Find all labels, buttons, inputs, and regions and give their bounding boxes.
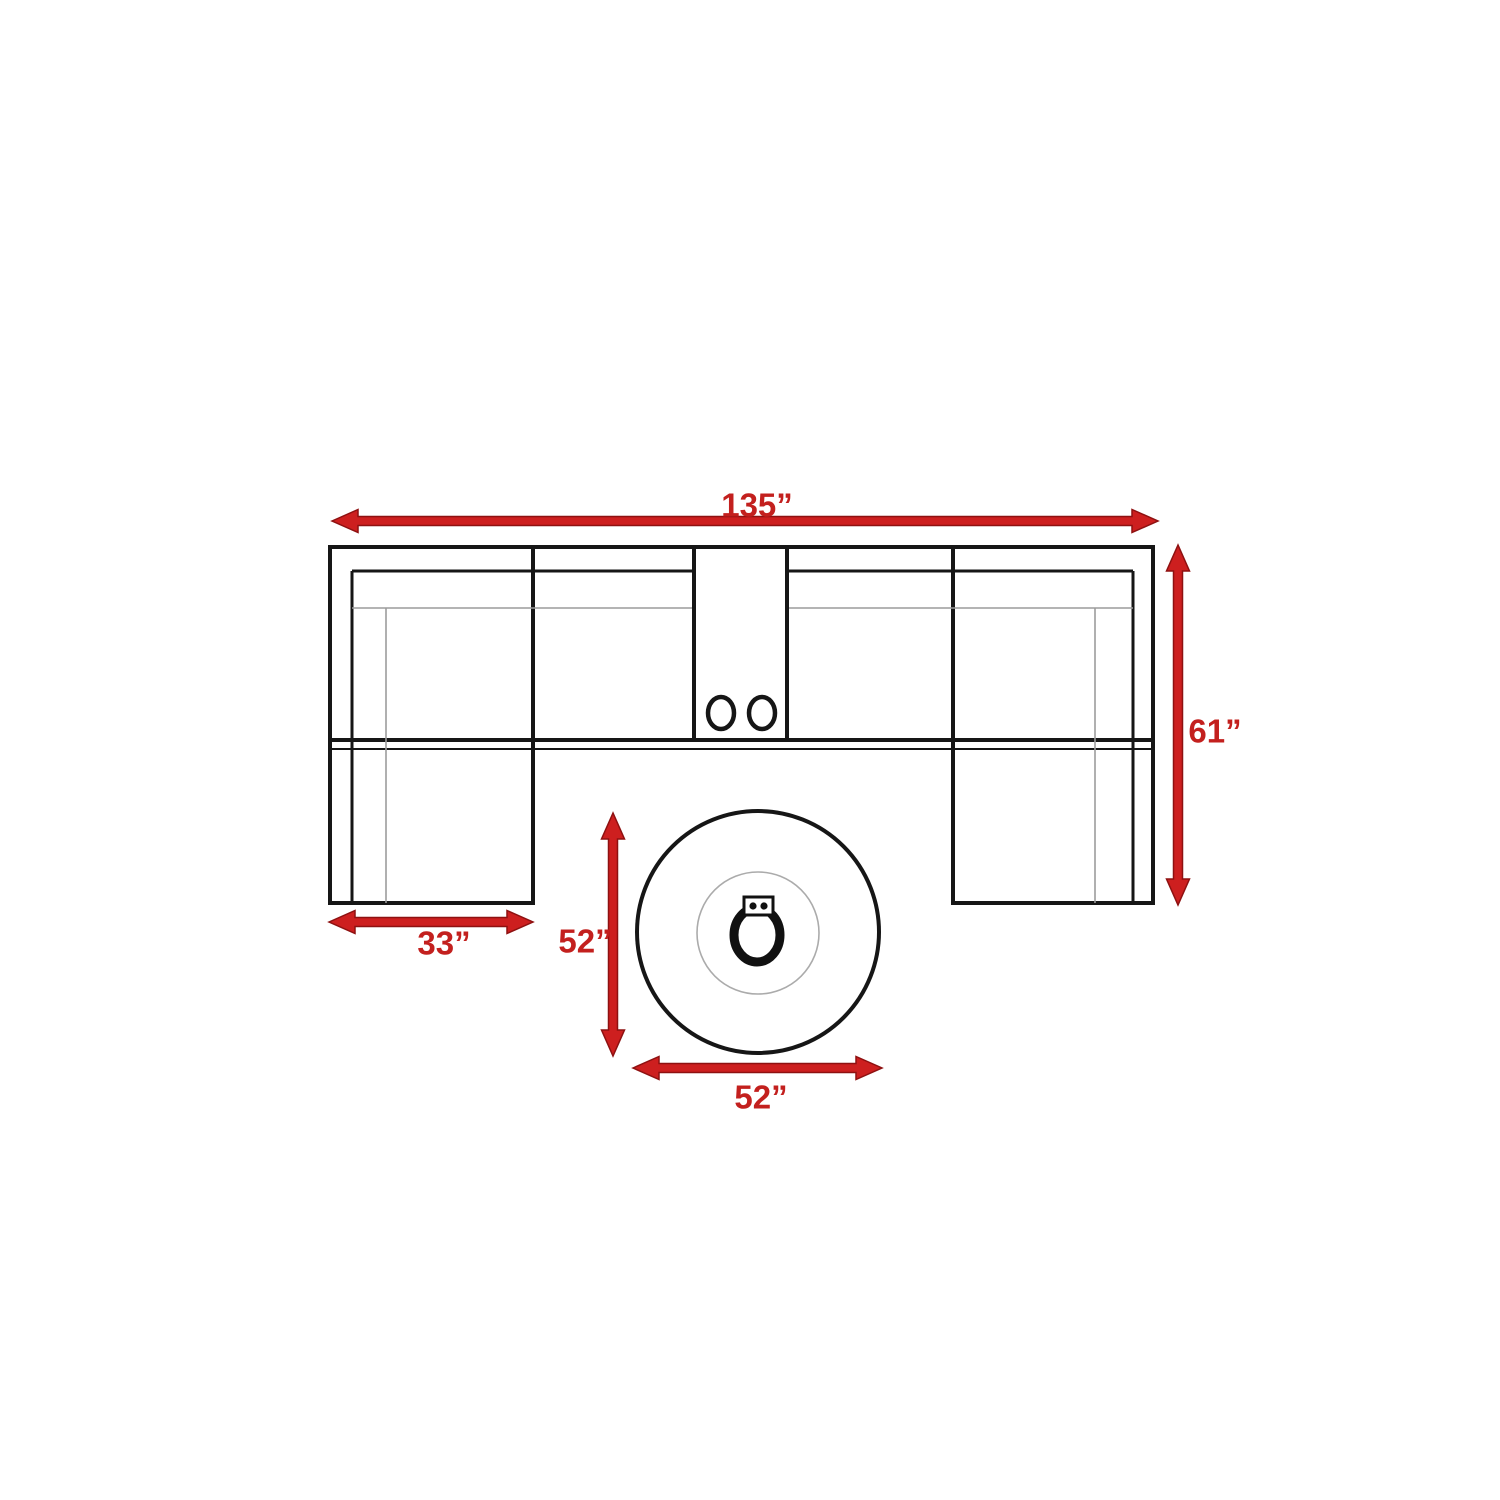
- control-knob-dot: [760, 902, 767, 909]
- fire-pit-control-panel-icon: [744, 897, 773, 915]
- plan-linework: [0, 0, 1500, 1500]
- table-top-outline: [637, 811, 879, 1053]
- table-width-dimension-label: 52”: [734, 1081, 787, 1114]
- floor-plan-diagram: 135” 61” 33” 52” 52”: [0, 0, 1500, 1500]
- table-width-arrow: [633, 1057, 882, 1080]
- fire-pit-table: [637, 811, 879, 1053]
- cup-holder-icon: [708, 697, 734, 729]
- sofa-depth-dimension-label: 61”: [1188, 715, 1241, 748]
- sofa-depth-arrow: [1167, 545, 1190, 905]
- chaise-width-dimension-label: 33”: [417, 927, 470, 960]
- control-knob-dot: [749, 902, 756, 909]
- sofa-width-dimension-label: 135”: [721, 489, 793, 522]
- console: [694, 545, 787, 741]
- sofa-seat-lines: [330, 740, 1153, 749]
- cup-holder-icon: [749, 697, 775, 729]
- table-depth-dimension-label: 52”: [558, 925, 611, 958]
